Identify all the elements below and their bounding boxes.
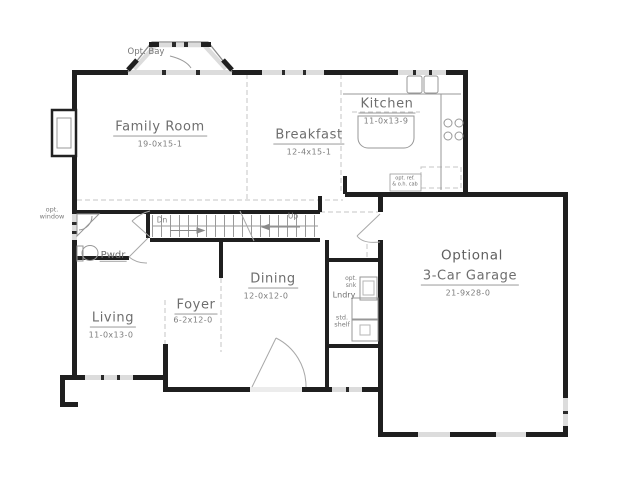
fireplace <box>52 110 77 156</box>
powder-door <box>129 238 148 263</box>
dryer-icon <box>352 320 378 341</box>
dryer-door-icon <box>360 325 370 335</box>
std-shelf-label: std. shelf <box>334 315 350 330</box>
opt-ref-label: opt. ref. & o.h. cab <box>392 176 417 188</box>
stairs-down-label: Dn <box>157 217 168 226</box>
floor-plan-drawing <box>0 0 640 480</box>
washer-icon <box>352 298 378 319</box>
opt-bay-label: Opt. Bay <box>128 48 165 58</box>
cooktop-burner-icon <box>455 132 463 140</box>
powder-sink-icon <box>77 214 99 236</box>
opt-window-label: opt. window <box>40 207 65 222</box>
cooktop-burner-icon <box>455 119 463 127</box>
down-arrowhead <box>197 228 204 233</box>
kitchen-dims: 11-0x13-9 <box>364 116 409 125</box>
up-arrowhead <box>262 225 269 230</box>
kitchen-sink-icon <box>407 76 422 93</box>
cooktop-burner-icon <box>444 132 452 140</box>
breakfast-label: Breakfast <box>273 125 344 144</box>
floor-plan: Family Room 19-0x15-1 Breakfast 12-4x15-… <box>0 0 640 480</box>
dining-label: Dining <box>248 269 298 288</box>
kitchen-label: Kitchen <box>358 94 415 113</box>
living-dims: 11-0x13-0 <box>89 330 134 339</box>
laundry-sink-bowl <box>363 281 374 295</box>
laundry-label: Lndry <box>333 290 356 299</box>
family-room-dims: 19-0x15-1 <box>138 139 183 148</box>
garage-label: 3-Car Garage <box>421 266 519 285</box>
opt-sink-label: opt. snk <box>345 276 357 290</box>
powder-label: Pwdr <box>100 244 127 262</box>
breakfast-dims: 12-4x15-1 <box>287 147 332 156</box>
dining-dims: 12-0x12-0 <box>244 291 289 300</box>
foyer-label: Foyer <box>174 295 217 314</box>
stairs-up-label: Up <box>288 213 298 222</box>
living-label: Living <box>90 308 136 327</box>
front-door <box>252 338 306 387</box>
garage-optional-label: Optional <box>439 246 505 265</box>
cooktop-burner-icon <box>444 119 452 127</box>
family-room-label: Family Room <box>113 117 207 136</box>
garage-entry-door <box>357 214 380 242</box>
kitchen-sink-icon <box>424 76 438 93</box>
garage-dims: 21-9x28-0 <box>446 288 491 297</box>
foyer-dims: 6-2x12-0 <box>173 315 212 324</box>
